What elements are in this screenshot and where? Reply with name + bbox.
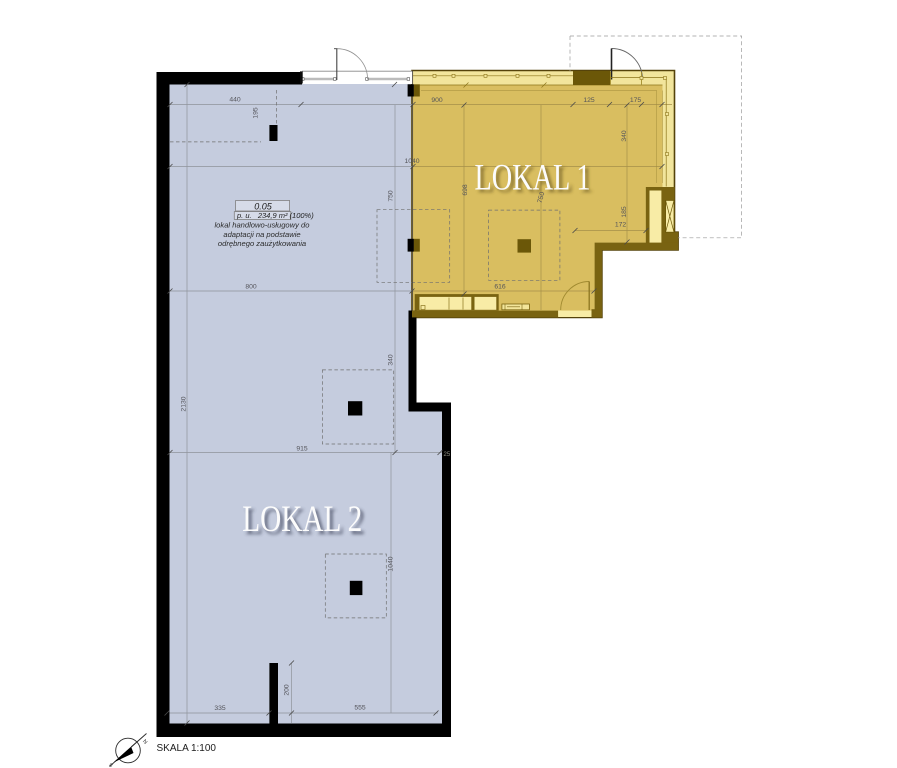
- svg-text:340: 340: [621, 130, 628, 142]
- svg-text:900: 900: [431, 97, 443, 104]
- svg-text:LOKAL 1: LOKAL 1: [475, 157, 591, 198]
- svg-text:25: 25: [444, 452, 451, 458]
- svg-text:800: 800: [245, 284, 257, 291]
- svg-text:SKALA 1:100: SKALA 1:100: [157, 743, 217, 754]
- svg-text:N: N: [141, 739, 148, 746]
- svg-text:195: 195: [253, 107, 260, 119]
- svg-text:S: S: [107, 762, 114, 768]
- svg-text:555: 555: [354, 705, 366, 712]
- svg-text:340: 340: [388, 354, 395, 366]
- svg-text:335: 335: [214, 705, 226, 712]
- svg-text:LOKAL 2: LOKAL 2: [242, 499, 362, 540]
- svg-text:200: 200: [284, 684, 291, 696]
- svg-text:1040: 1040: [404, 158, 419, 165]
- svg-text:185: 185: [621, 206, 628, 218]
- svg-text:440: 440: [229, 97, 241, 104]
- svg-text:0.05: 0.05: [254, 201, 273, 211]
- svg-text:750: 750: [388, 190, 395, 202]
- svg-text:175: 175: [630, 97, 642, 104]
- svg-text:p. u. 234,9 m² (100%): p. u. 234,9 m² (100%): [236, 211, 314, 220]
- svg-text:2130: 2130: [181, 396, 188, 411]
- svg-text:616: 616: [494, 284, 506, 291]
- svg-text:915: 915: [296, 446, 308, 453]
- svg-text:1040: 1040: [388, 556, 395, 571]
- svg-text:698: 698: [462, 184, 469, 196]
- svg-text:lokal handlowo-usługowy do: lokal handlowo-usługowy do: [215, 221, 310, 230]
- svg-text:172: 172: [615, 222, 627, 229]
- svg-text:125: 125: [583, 97, 595, 104]
- svg-text:adaptacji na podstawie: adaptacji na podstawie: [223, 230, 300, 239]
- svg-text:odrębnego zaużytkowania: odrębnego zaużytkowania: [218, 239, 306, 248]
